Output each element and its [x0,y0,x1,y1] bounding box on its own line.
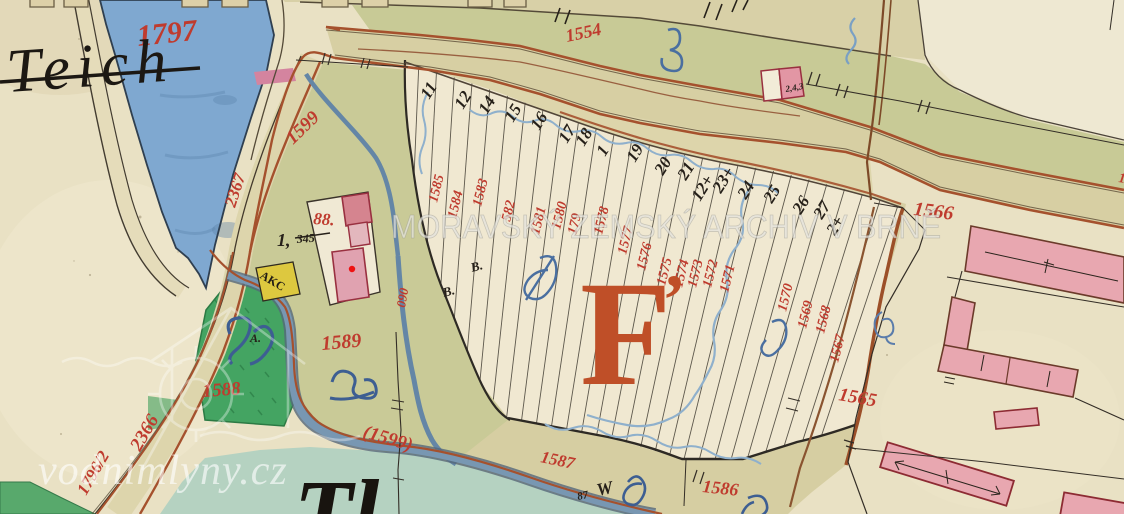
svg-text:1,: 1, [277,230,291,250]
svg-text:Teich: Teich [4,26,175,105]
svg-text:345: 345 [295,231,315,246]
svg-text:1586: 1586 [702,476,740,500]
svg-text:1589: 1589 [321,330,363,355]
svg-text:88.: 88. [313,209,336,229]
svg-text:A.: A. [249,331,261,345]
svg-text:’: ’ [662,260,686,340]
svg-text:F: F [580,251,672,417]
svg-text:vodnimlyny.cz: vodnimlyny.cz [38,448,288,494]
svg-text:1588: 1588 [202,378,242,402]
svg-text:Tl: Tl [294,460,380,514]
svg-text:15: 15 [1117,171,1124,188]
svg-text:MORAVSKÝ ZEMSKÝ ARCHIV V BRNĚ: MORAVSKÝ ZEMSKÝ ARCHIV V BRNĚ [391,208,941,245]
